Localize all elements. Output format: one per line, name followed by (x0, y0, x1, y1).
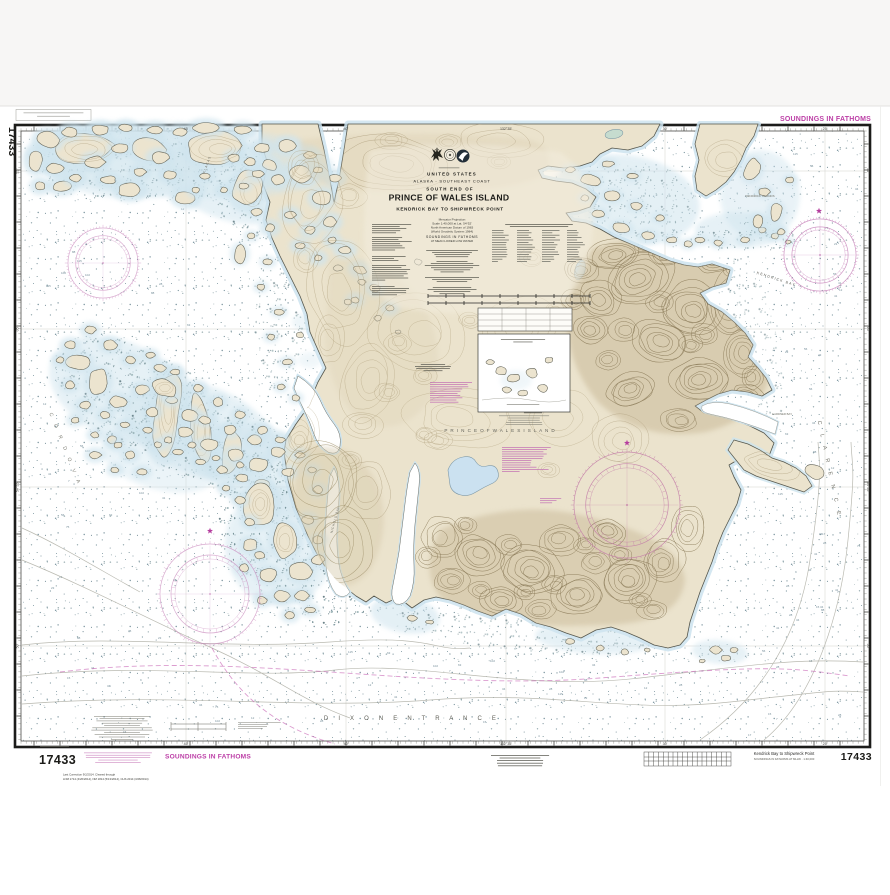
svg-text:UNITED STATES: UNITED STATES (427, 172, 477, 177)
svg-text:SOUNDINGS IN FATHOMS: SOUNDINGS IN FATHOMS (780, 116, 871, 123)
svg-text:63: 63 (187, 323, 191, 327)
svg-text:54°55': 54°55' (16, 482, 20, 492)
svg-text:41: 41 (834, 294, 838, 298)
svg-text:41: 41 (776, 626, 780, 630)
svg-text:AT MEAN LOWER LOW WATER: AT MEAN LOWER LOW WATER (431, 239, 473, 243)
svg-text:55°: 55° (866, 168, 870, 174)
svg-text:17433: 17433 (841, 751, 872, 763)
svg-text:115: 115 (793, 152, 798, 156)
svg-text:34: 34 (812, 421, 816, 425)
svg-text:23: 23 (51, 586, 55, 590)
svg-text:88: 88 (821, 608, 825, 612)
svg-text:12: 12 (644, 686, 648, 690)
svg-text:34: 34 (91, 666, 95, 670)
svg-text:132°35': 132°35' (500, 127, 512, 131)
svg-text:75: 75 (128, 629, 132, 633)
svg-text:23: 23 (818, 353, 822, 357)
svg-text:50': 50' (16, 643, 20, 648)
svg-text:63: 63 (785, 432, 789, 436)
svg-text:115: 115 (77, 259, 82, 263)
svg-text:115: 115 (46, 284, 51, 288)
svg-text:56: 56 (80, 444, 84, 448)
svg-text:63: 63 (109, 513, 113, 517)
svg-text:SOUNDINGS IN FATHOMS AT MLLW ·: SOUNDINGS IN FATHOMS AT MLLW · 1:40,000 (754, 757, 815, 761)
svg-text:34: 34 (199, 703, 203, 707)
svg-text:54°55': 54°55' (866, 482, 870, 492)
svg-text:34: 34 (855, 187, 859, 191)
svg-text:(World Geodetic System 1984): (World Geodetic System 1984) (431, 230, 473, 234)
svg-text:45': 45' (184, 742, 189, 746)
svg-text:34: 34 (107, 684, 111, 688)
svg-text:KENDRICK BAY TO SHIPWRECK POIN: KENDRICK BAY TO SHIPWRECK POINT (396, 207, 503, 212)
svg-text:12: 12 (43, 402, 47, 406)
svg-text:56: 56 (61, 513, 65, 517)
svg-text:Kendrick Bay to Shipwreck Poin: Kendrick Bay to Shipwreck Point (754, 751, 815, 756)
svg-text:23: 23 (834, 242, 838, 246)
svg-text:132°35': 132°35' (500, 742, 512, 746)
svg-text:102: 102 (85, 273, 90, 277)
svg-text:28: 28 (823, 541, 827, 545)
svg-text:75: 75 (215, 705, 219, 709)
svg-text:28: 28 (159, 282, 163, 286)
svg-text:P R I N C E O F W A L E S: P R I N C E O F W A L E S I S L A N D (444, 428, 555, 433)
svg-text:102: 102 (490, 659, 495, 663)
svg-text:12: 12 (368, 683, 372, 687)
svg-text:28: 28 (549, 687, 553, 691)
svg-text:102: 102 (215, 719, 220, 723)
svg-text:41: 41 (48, 472, 52, 476)
svg-text:05': 05' (866, 327, 870, 332)
svg-text:30': 30' (663, 127, 668, 131)
svg-text:102: 102 (433, 664, 438, 668)
svg-text:50': 50' (866, 644, 870, 649)
svg-text:12: 12 (584, 696, 588, 700)
svg-text:25': 25' (823, 742, 828, 746)
svg-text:17433: 17433 (39, 753, 76, 767)
svg-text:41: 41 (162, 496, 166, 500)
svg-text:KENDRICK ISLANDS: KENDRICK ISLANDS (745, 194, 774, 198)
svg-text:15: 15 (123, 730, 127, 734)
svg-text:102: 102 (139, 491, 144, 495)
svg-text:40': 40' (344, 127, 349, 131)
svg-text:88: 88 (151, 291, 155, 295)
svg-text:40': 40' (344, 742, 349, 746)
svg-text:63: 63 (387, 651, 391, 655)
svg-text:115: 115 (558, 692, 563, 696)
svg-text:05': 05' (16, 326, 20, 331)
svg-text:88: 88 (72, 250, 76, 254)
svg-text:D I X O N E N T R A N C E: D I X O N E N T R A N C E (324, 716, 500, 722)
svg-text:88: 88 (813, 450, 817, 454)
svg-text:ALASKA - SOUTHEAST COAST: ALASKA - SOUTHEAST COAST (413, 179, 490, 184)
svg-text:56: 56 (762, 649, 766, 653)
svg-text:LNM 1714 (4/26/2014), NM 181: LNM 1714 (4/26/2014), NM 1814 (5/13/2014… (63, 777, 149, 781)
svg-text:17: 17 (822, 532, 826, 536)
svg-text:23: 23 (785, 350, 789, 354)
svg-text:56: 56 (804, 347, 808, 351)
svg-text:115: 115 (348, 650, 353, 654)
svg-text:34: 34 (819, 532, 823, 536)
svg-text:17: 17 (748, 733, 752, 737)
svg-text:102: 102 (559, 670, 564, 674)
svg-text:115: 115 (778, 492, 783, 496)
svg-text:34: 34 (592, 663, 596, 667)
svg-text:28: 28 (786, 584, 790, 588)
svg-text:SOUNDINGS IN FATHOMS: SOUNDINGS IN FATHOMS (165, 754, 251, 761)
svg-text:15: 15 (768, 712, 772, 716)
svg-text:GARDNER BAY: GARDNER BAY (772, 412, 792, 416)
svg-text:15: 15 (67, 676, 71, 680)
svg-text:28: 28 (679, 683, 683, 687)
svg-text:34: 34 (796, 618, 800, 622)
svg-text:88: 88 (77, 636, 81, 640)
svg-text:SOUTH END OF: SOUTH END OF (426, 187, 474, 192)
svg-text:45': 45' (184, 127, 189, 131)
svg-text:Last Correction 9/2/2014. Cl: Last Correction 9/2/2014. Cleared throug… (63, 773, 116, 777)
svg-text:PRINCE OF WALES ISLAND: PRINCE OF WALES ISLAND (389, 193, 510, 203)
svg-text:63: 63 (458, 663, 462, 667)
svg-text:56: 56 (810, 164, 814, 168)
svg-text:28: 28 (789, 613, 793, 617)
svg-text:41: 41 (814, 552, 818, 556)
svg-text:15: 15 (816, 605, 820, 609)
svg-text:75: 75 (66, 525, 70, 529)
svg-text:55°: 55° (16, 168, 20, 174)
svg-text:28: 28 (776, 665, 780, 669)
svg-text:23: 23 (158, 636, 162, 640)
svg-text:25': 25' (823, 127, 828, 131)
svg-text:12: 12 (251, 716, 255, 720)
svg-text:41: 41 (394, 695, 398, 699)
svg-text:56: 56 (809, 387, 813, 391)
svg-text:34: 34 (502, 687, 506, 691)
svg-text:102: 102 (61, 271, 66, 275)
svg-text:30': 30' (663, 742, 668, 746)
svg-text:28: 28 (838, 713, 842, 717)
svg-text:75: 75 (857, 544, 861, 548)
